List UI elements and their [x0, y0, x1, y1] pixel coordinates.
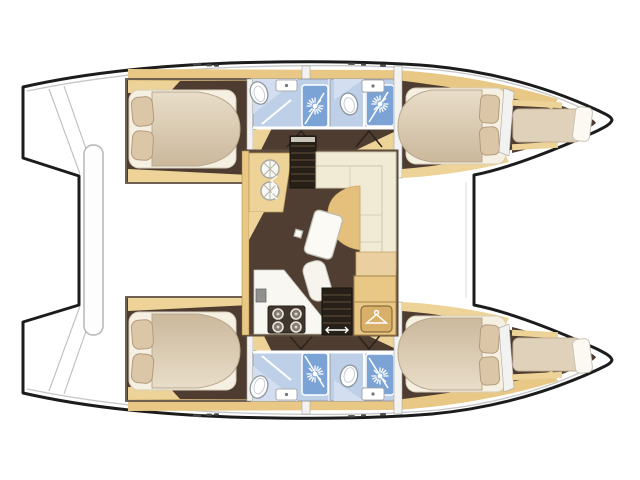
- floor-plan-canvas: [0, 0, 640, 480]
- stove-icon: [268, 306, 305, 333]
- bathroom-forward: [330, 79, 396, 128]
- catamaran-layout-diagram: [0, 0, 640, 480]
- pillow: [479, 126, 500, 155]
- sofa-end-seat: [356, 252, 396, 276]
- bed-duvet: [398, 90, 482, 162]
- aft-platform-bar: [84, 145, 103, 335]
- pillow: [572, 106, 593, 142]
- pillow: [131, 130, 154, 160]
- saloon: [242, 136, 397, 335]
- companionway-steps-starboard: [322, 288, 352, 335]
- shower-jet-icon: [307, 98, 324, 115]
- galley-sink-icon: [261, 160, 279, 178]
- saloon-aft-wall: [242, 151, 249, 335]
- pillow: [479, 94, 500, 123]
- wardrobe: [354, 276, 396, 335]
- bathroom-aft: [247, 79, 330, 128]
- galley-appliance: [256, 289, 266, 302]
- sink-icon: [362, 80, 384, 92]
- bed-duvet: [152, 92, 240, 166]
- forepeak-berth: [513, 109, 581, 142]
- pillow: [131, 96, 154, 127]
- shower-deck-wall: [302, 66, 310, 80]
- table-leaf: [294, 229, 303, 238]
- companionway-steps-port: [290, 136, 316, 188]
- sink-icon: [276, 80, 297, 91]
